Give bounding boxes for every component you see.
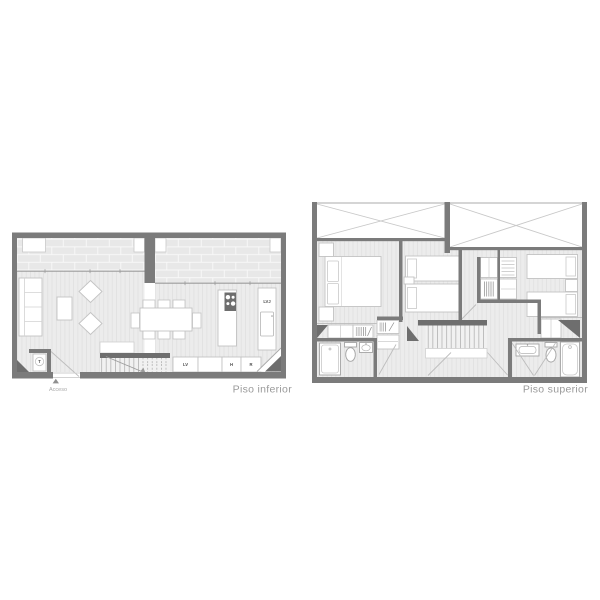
- nightstand: [566, 280, 578, 292]
- nightstand: [319, 307, 334, 321]
- nightstand: [404, 277, 414, 284]
- void-cross-right: [450, 204, 582, 247]
- floor-plan-upper: Piso superior: [312, 202, 588, 396]
- sofa: [19, 278, 42, 336]
- sink: [360, 343, 373, 353]
- toilet: [345, 343, 357, 362]
- appliance-label-r: R: [249, 362, 252, 367]
- kitchen-island: [218, 290, 237, 346]
- access-arrow-icon: [53, 379, 59, 384]
- single-bed: [527, 255, 578, 279]
- appliance-label-lvj: LVJ: [263, 299, 271, 304]
- kitchen-counter-row: LV H R: [173, 357, 261, 372]
- floor-plans-canvas: LVJ LV H R: [0, 0, 600, 600]
- access-label: Acceso: [49, 387, 67, 393]
- plan-title-upper: Piso superior: [523, 384, 588, 396]
- cooktop-icon: [225, 293, 237, 312]
- terrace-right: [155, 238, 281, 283]
- appliance-label-lv: LV: [183, 362, 188, 367]
- single-bed: [406, 284, 460, 312]
- floor-plan-lower: LVJ LV H R: [12, 233, 292, 396]
- tall-cabinet: LVJ: [258, 288, 276, 350]
- bathtub: [561, 342, 580, 377]
- bedroom-middle: [404, 256, 459, 312]
- floor-plans-drawing: LVJ LV H R: [0, 0, 600, 600]
- toilet-label: T: [38, 359, 41, 364]
- stairs-upper: [426, 326, 488, 359]
- stair-rail: [418, 320, 487, 326]
- access-marker: Acceso: [49, 379, 67, 393]
- toilet: [545, 343, 557, 363]
- dining-table: [140, 308, 192, 331]
- shower: [320, 343, 341, 375]
- appliance-label-h: H: [230, 362, 233, 367]
- coffee-table: [57, 297, 72, 320]
- single-bed: [527, 292, 578, 317]
- void-cross-left: [317, 204, 445, 238]
- nightstand: [319, 243, 334, 257]
- plan-title-lower: Piso inferior: [233, 384, 293, 396]
